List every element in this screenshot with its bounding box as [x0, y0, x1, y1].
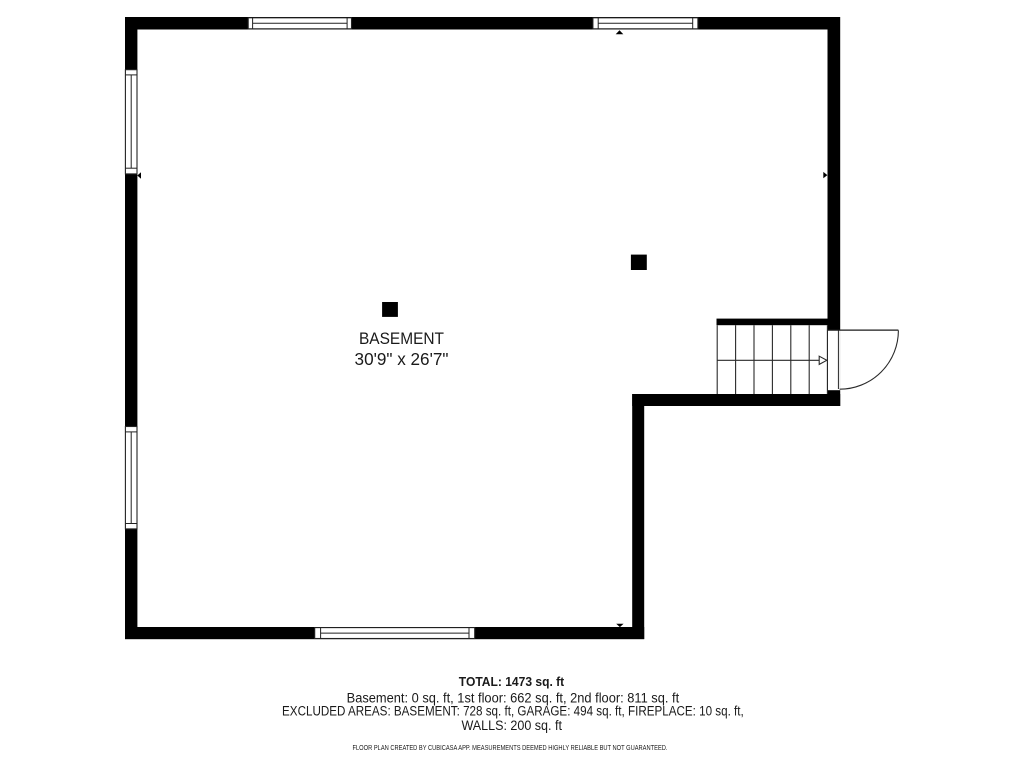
svg-text:BASEMENT: BASEMENT [359, 330, 444, 348]
svg-text:EXCLUDED AREAS: BASEMENT: 728: EXCLUDED AREAS: BASEMENT: 728 sq. ft, GA… [282, 704, 744, 719]
svg-text:WALLS: 200 sq. ft: WALLS: 200 sq. ft [461, 718, 562, 733]
svg-text:FLOOR PLAN CREATED BY CUBICASA: FLOOR PLAN CREATED BY CUBICASA APP. MEAS… [353, 745, 668, 752]
svg-text:30'9" x 26'7": 30'9" x 26'7" [355, 349, 449, 369]
svg-text:TOTAL: 1473 sq. ft: TOTAL: 1473 sq. ft [459, 674, 565, 689]
